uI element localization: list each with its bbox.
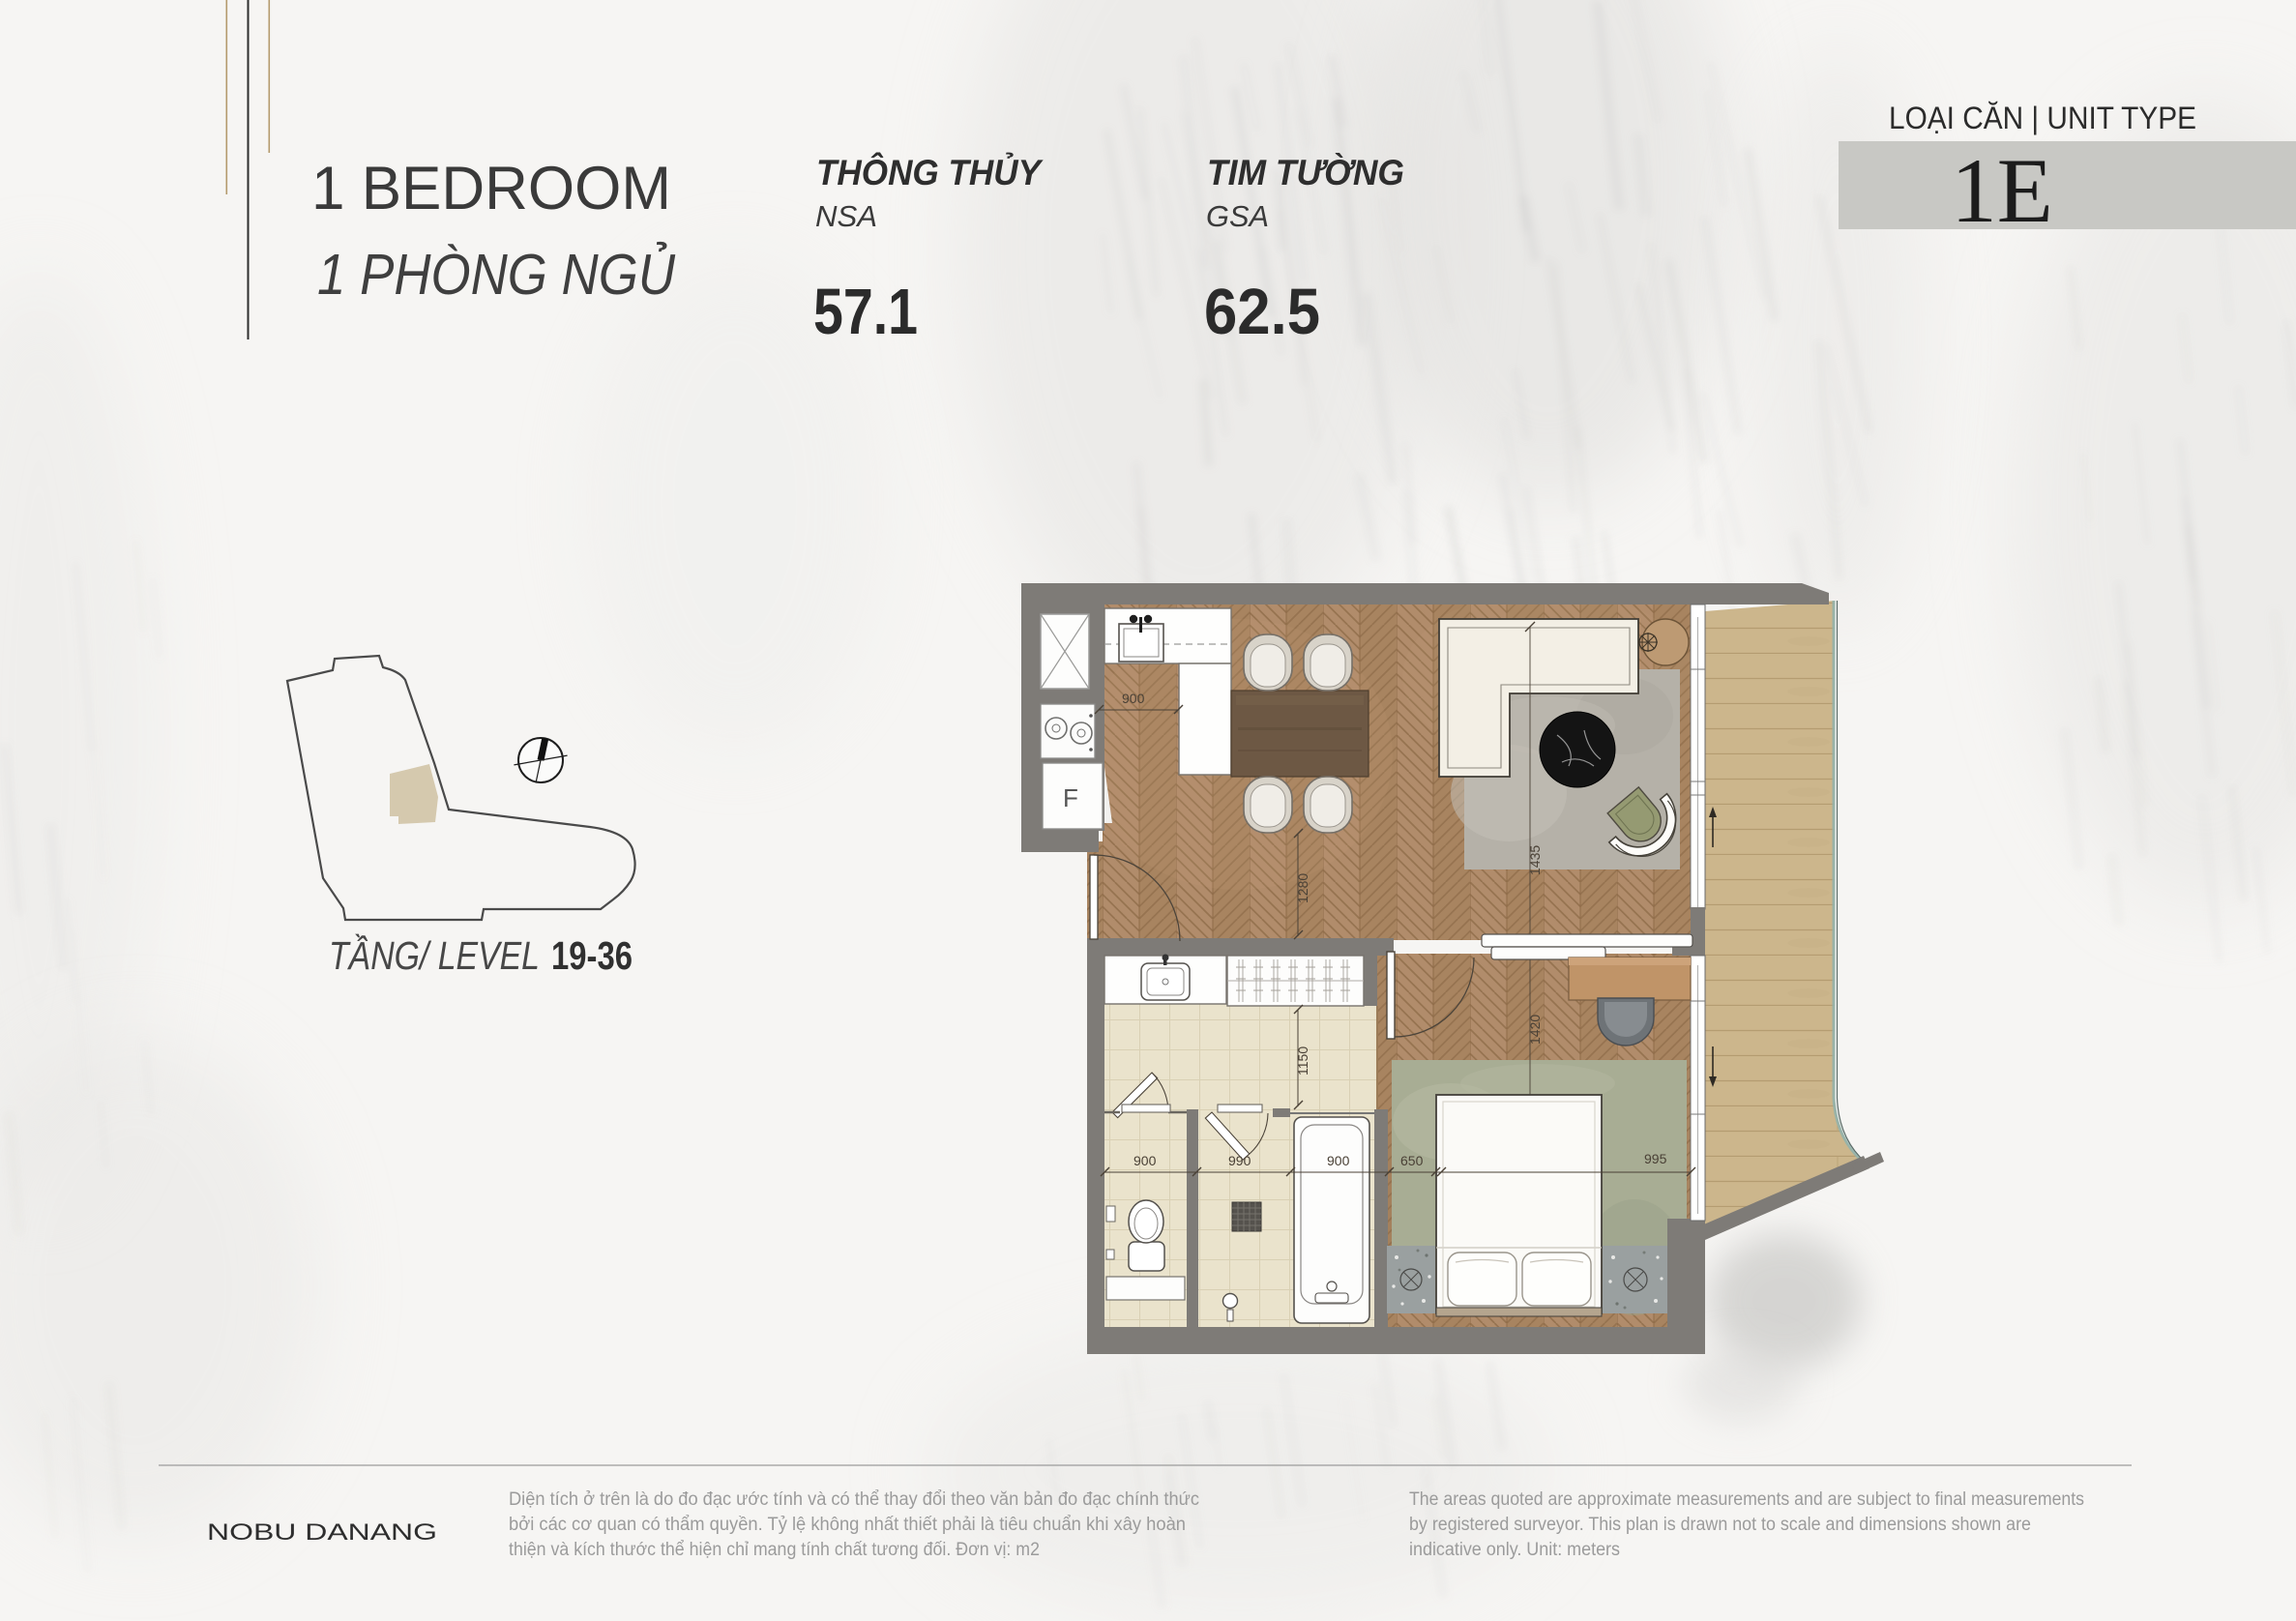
svg-text:THÔNG THỦY: THÔNG THỦY — [816, 152, 1044, 192]
svg-text:1435: 1435 — [1527, 845, 1543, 875]
svg-text:650: 650 — [1400, 1153, 1424, 1168]
svg-text:NOBU DANANG: NOBU DANANG — [207, 1519, 437, 1546]
svg-text:1280: 1280 — [1295, 873, 1310, 903]
svg-text:F: F — [1063, 783, 1078, 812]
svg-text:TIM TƯỜNG: TIM TƯỜNG — [1207, 153, 1404, 192]
svg-text:GSA: GSA — [1206, 199, 1269, 233]
svg-text:1E: 1E — [1951, 139, 2053, 242]
svg-text:990: 990 — [1228, 1153, 1251, 1168]
svg-text:1 PHÒNG NGỦ: 1 PHÒNG NGỦ — [317, 241, 675, 307]
svg-text:NSA: NSA — [815, 199, 877, 233]
svg-text:900: 900 — [1327, 1153, 1350, 1168]
svg-text:TẦNG/ LEVEL: TẦNG/ LEVEL — [329, 933, 540, 978]
svg-text:900: 900 — [1133, 1153, 1157, 1168]
svg-text:by registered surveyor. This p: by registered surveyor. This plan is dra… — [1409, 1515, 2031, 1535]
svg-text:The areas quoted are approxima: The areas quoted are approximate measure… — [1409, 1489, 2084, 1510]
svg-text:1 BEDROOM: 1 BEDROOM — [311, 155, 671, 222]
svg-text:19-36: 19-36 — [551, 933, 633, 978]
svg-text:bởi các cơ quan có thẩm quyền.: bởi các cơ quan có thẩm quyền. Tỷ lệ khô… — [509, 1515, 1186, 1535]
svg-text:indicative only. Unit: meters: indicative only. Unit: meters — [1409, 1540, 1620, 1560]
svg-text:995: 995 — [1644, 1151, 1667, 1166]
svg-text:900: 900 — [1122, 691, 1145, 706]
svg-text:LOẠI CĂN | UNIT TYPE: LOẠI CĂN | UNIT TYPE — [1889, 101, 2196, 135]
svg-text:1420: 1420 — [1527, 1015, 1543, 1045]
svg-text:thiện và kích thước thể hiện c: thiện và kích thước thể hiện chỉ mang tí… — [509, 1540, 1040, 1560]
svg-text:57.1: 57.1 — [813, 276, 918, 348]
svg-text:Diện tích ở trên là do đo đạc: Diện tích ở trên là do đo đạc ước tính v… — [509, 1489, 1199, 1510]
svg-text:1150: 1150 — [1295, 1046, 1310, 1076]
svg-text:62.5: 62.5 — [1204, 276, 1320, 348]
